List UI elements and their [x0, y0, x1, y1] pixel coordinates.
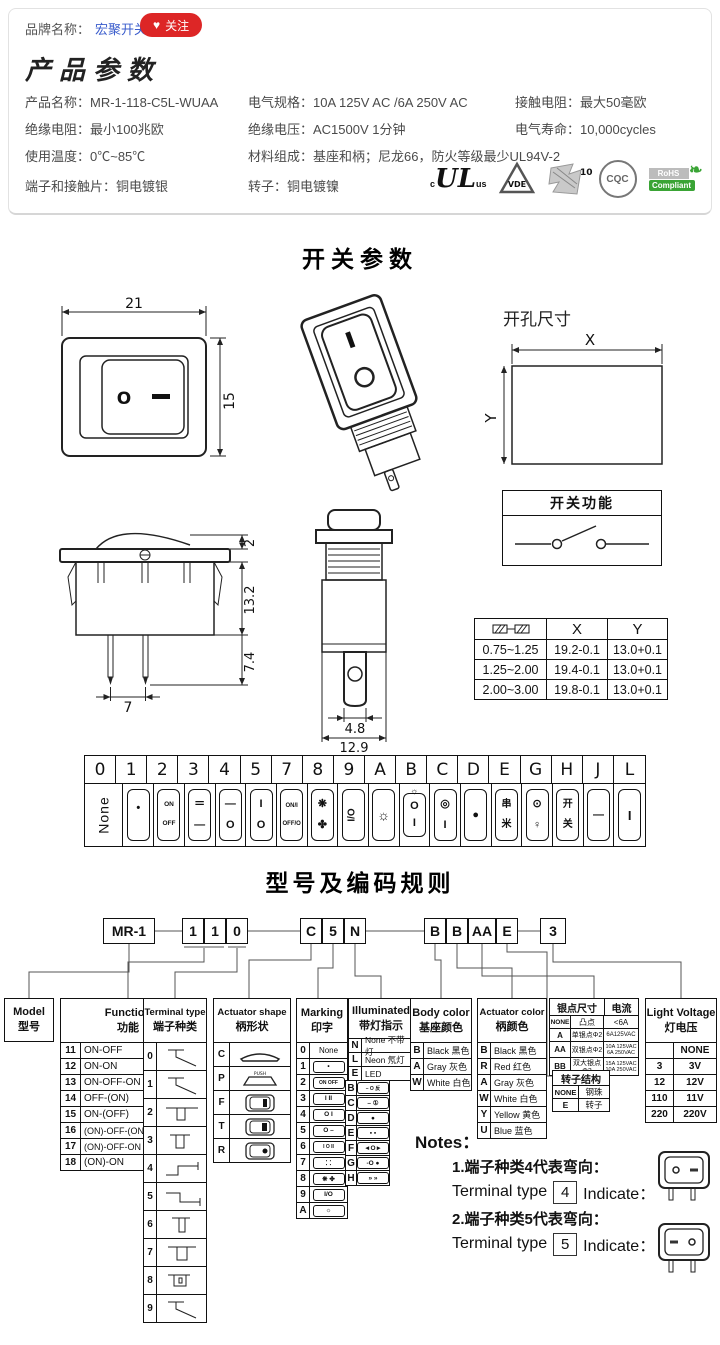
terminal-diagram [160, 1185, 204, 1209]
terminal-diagram [160, 1101, 204, 1125]
terminal-diagram [160, 1157, 204, 1181]
actuator-color-column: Actuator color柄颜色 BBlack 黑色 RRed 红色 AGra… [477, 998, 547, 1139]
notes-title: Notes： [415, 1128, 479, 1153]
svg-text:PUSH: PUSH [254, 1071, 266, 1077]
push-button-icon: PUSH [233, 1069, 287, 1089]
terminal-diagram [160, 1241, 204, 1265]
light-voltage-column: Light Voltage灯电压 NONE 33V 1212V 11011V 2… [645, 998, 717, 1123]
page: 品牌名称： 宏聚开关 ♥ 关注 产品参数 产品名称：MR-1-118-C5L-W… [0, 0, 720, 1345]
terminal-diagram [160, 1269, 204, 1293]
terminal-type-5-code: 5 [553, 1233, 577, 1256]
model-column: Model型号 [4, 998, 54, 1042]
note-switch-icon-type5 [655, 1220, 713, 1278]
rocker-bar2-icon [233, 1117, 287, 1137]
terminal-diagram [160, 1045, 204, 1069]
marking-column: Marking印字 0None 1• 2ON OFF 3I II 4O I 5O… [296, 998, 348, 1219]
note-2-cn: 2.端子种类5代表弯向： [452, 1208, 608, 1229]
marking-column-right: B– O 反 C– ① D● E▪ ▪ F◄O► G-O ● H» » [345, 1080, 390, 1186]
terminal-type-4-code: 4 [553, 1181, 577, 1204]
terminal-diagram [160, 1129, 204, 1153]
terminal-type-column: Terminal type端子种类 0 1 2 3 4 5 6 7 8 9 [143, 998, 207, 1323]
note-switch-icon-type4 [655, 1148, 713, 1206]
rocker-dot-icon [233, 1141, 287, 1161]
silver-point-column: 银点尺寸 电流 NONE凸点<6A A单银点Φ26A125VAC AA双银点Φ2… [549, 998, 639, 1076]
terminal-diagram [160, 1213, 204, 1237]
curved-rocker-icon [233, 1045, 287, 1065]
note-1-en: Terminal type4Indicate： [452, 1180, 655, 1204]
terminal-diagram [160, 1073, 204, 1097]
terminal-diagram [160, 1297, 204, 1321]
note-2-en: Terminal type5Indicate： [452, 1232, 655, 1256]
code-connector-lines [0, 0, 720, 1110]
note-1-cn: 1.端子种类4代表弯向： [452, 1156, 608, 1177]
body-color-column: Body color基座颜色 BBlack 黑色 AGray 灰色 WWhite… [410, 998, 472, 1091]
actuator-shape-column: Actuator shape柄形状 C PPUSH F T R [213, 998, 291, 1163]
illuminated-column: Illuminated带灯指示 NNone 不带灯 LNeon 氖灯 ELED [348, 998, 414, 1081]
rotor-structure-column: 转子结构 NONE钢珠 E转子 [552, 1070, 610, 1112]
rocker-bar-icon [233, 1093, 287, 1113]
